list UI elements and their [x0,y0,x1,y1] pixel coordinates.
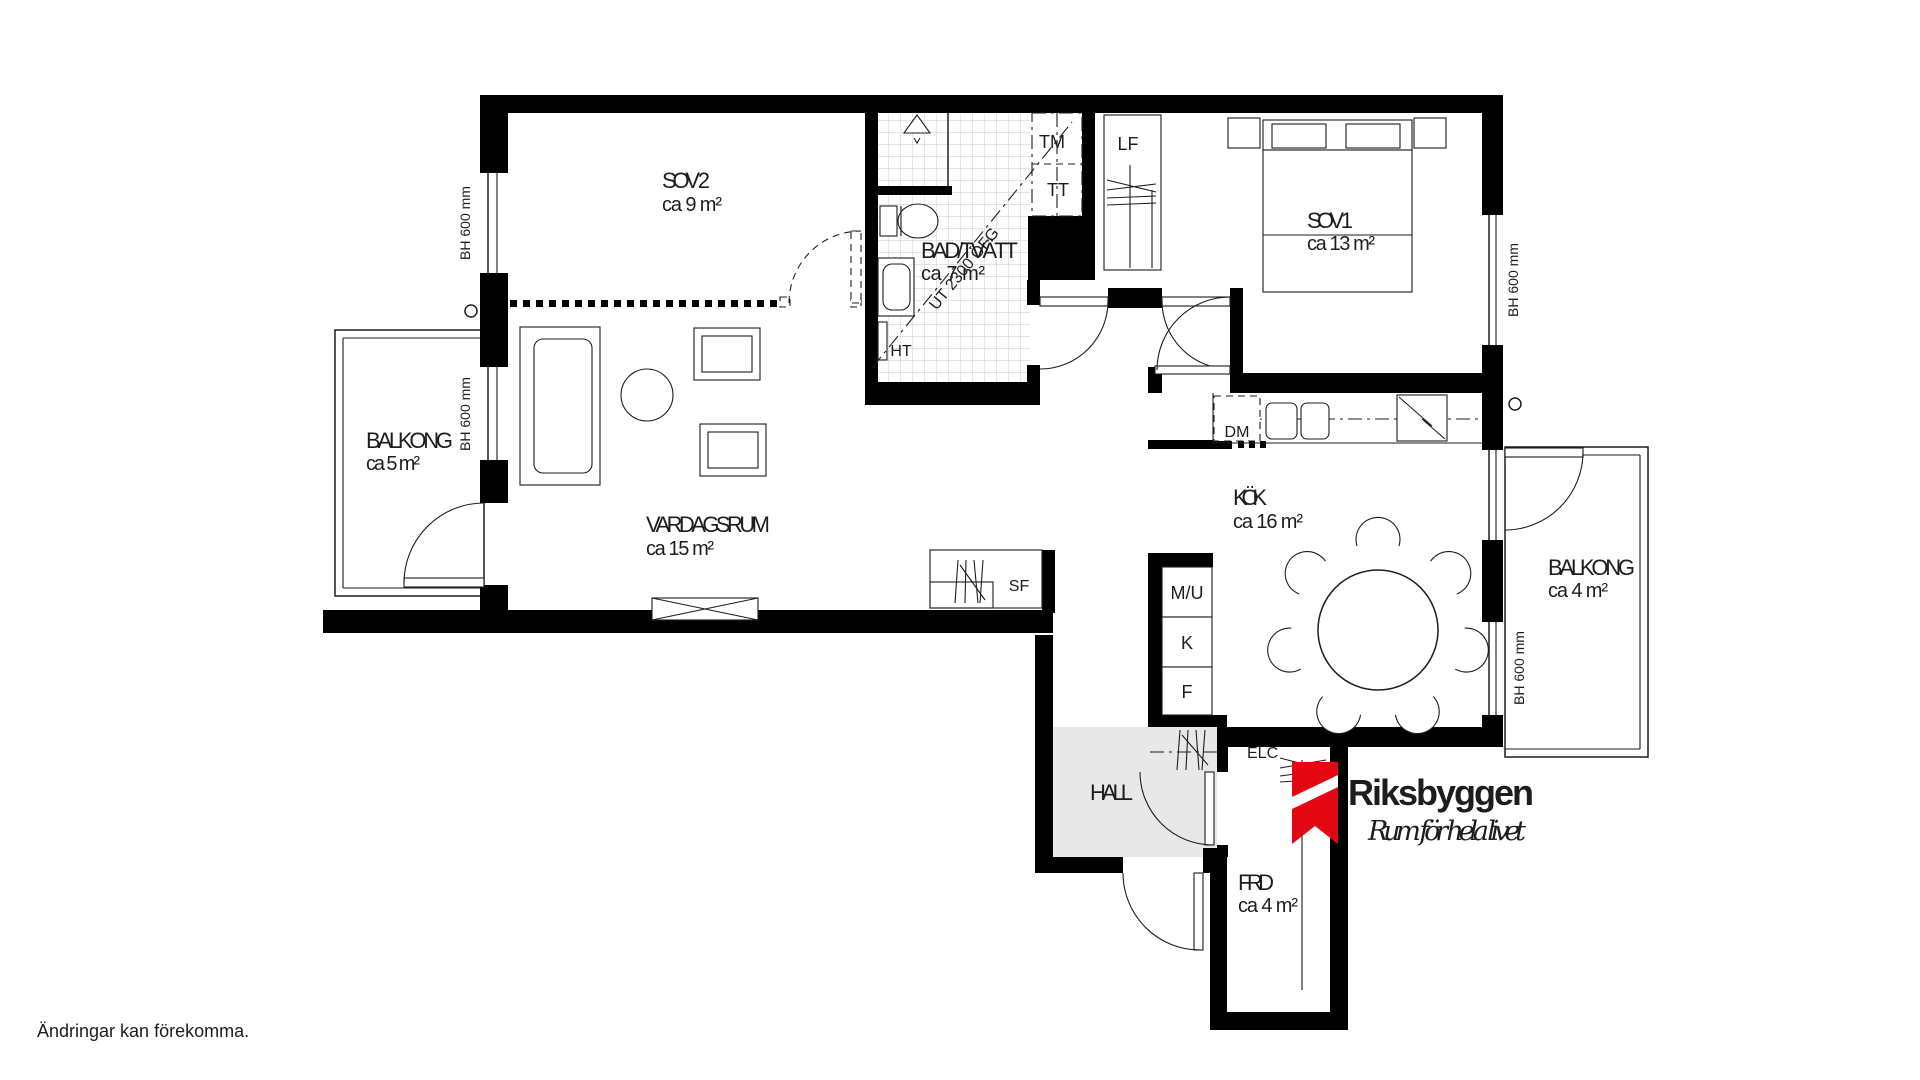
door-sov1 [1162,297,1230,369]
sov1-furniture [1228,118,1446,292]
floor-plan: SOV 2 ca 9 m² BAD/TVÄTT ca 7 m² SOV 1 ca… [0,0,1920,1080]
armchair [700,424,766,476]
pillow [1272,124,1326,148]
livingroom-furniture [520,327,766,620]
door-kok-passage [1155,297,1230,374]
balcony-right [1505,447,1648,757]
label-ht: HT [890,343,912,360]
label-f: F [1182,682,1193,702]
window-vardagsrum [480,367,508,460]
label-balkong-left-name: BALKONG [366,428,453,453]
chair [1276,543,1326,595]
door-entrance [1123,873,1203,950]
label-hall-name: HALL [1090,780,1133,805]
label-mu: M/U [1171,583,1204,603]
kitchen-counter [1213,393,1482,443]
window-kok-balcony-door [1482,450,1503,540]
nightstand-left [1228,118,1260,148]
wall-opening-marker [652,598,758,620]
sink-right [1301,403,1329,439]
coffee-table [621,369,673,421]
page: SOV 2 ca 9 m² BAD/TVÄTT ca 7 m² SOV 1 ca… [0,0,1920,1080]
label-bh-window-sov1: BH 600 mm [1505,243,1521,317]
label-sov1-area: ca 13 m² [1307,233,1375,255]
window-sov2 [480,173,508,273]
label-kok-area: ca 16 m² [1233,511,1303,533]
label-bh-window-sov2: BH 600 mm [457,186,473,260]
door-sov2-optional [510,231,861,307]
armchair [694,328,760,380]
chair [1263,627,1301,676]
facade-marker-right [1509,398,1521,410]
chair [1430,543,1480,595]
sink-left [1266,403,1297,439]
label-tt: TT [1047,180,1069,200]
shower-partition [878,186,952,195]
stove [1397,395,1447,441]
label-sov1-name: SOV 1 [1307,208,1353,233]
label-balkong-right-area: ca 4 m² [1548,580,1608,602]
sofa [520,327,600,485]
balcony-right-outline [1505,447,1648,757]
label-elc: ELC [1247,745,1278,762]
beam-stub [1148,440,1232,449]
door-balcony-left [404,503,484,587]
dining-table-top [1318,570,1438,690]
riksbyggen-tagline: Rum för hela livet [1367,816,1526,847]
dining-table [1263,517,1492,741]
label-frd-area: ca 4 m² [1238,895,1298,917]
label-sov2-name: SOV 2 [662,168,710,193]
washer-dryer-unit [1032,113,1082,216]
window-kok [1482,622,1503,715]
facade-marker-left [465,305,477,317]
label-lf: LF [1117,134,1138,154]
label-vardagsrum-name: VARDAGSRUM [646,512,770,537]
label-kok-name: KÖK [1233,485,1267,510]
label-bh-window-kok: BH 600 mm [1511,631,1527,705]
label-tm: TM [1039,132,1065,152]
disclaimer-text: Ändringar kan förekomma. [37,1021,249,1041]
label-dm: DM [1225,424,1250,441]
label-frd-name: FRD [1238,870,1274,895]
nightstand-right [1414,118,1446,148]
label-sf: SF [1009,578,1030,595]
washbasin [878,258,914,316]
label-bh-window-vardagsrum: BH 600 mm [457,377,473,451]
riksbyggen-logo-text: Riksbyggen [1348,772,1534,813]
towel-dryer [878,322,887,360]
label-vardagsrum-area: ca 15 m² [646,538,714,560]
window-sov1 [1482,215,1503,345]
label-sov2-area: ca 9 m² [662,194,722,216]
pillow [1346,124,1400,148]
double-bed [1263,120,1412,292]
label-balkong-left-area: ca 5 m² [366,453,420,475]
brand-logo: Riksbyggen Rum för hela livet [1292,762,1534,847]
label-balkong-right-name: BALKONG [1548,555,1635,580]
door-balcony-right [1505,448,1583,530]
door-bad [1040,297,1108,369]
toilet [880,204,938,238]
label-k: K [1181,633,1193,653]
chair [1356,517,1400,546]
